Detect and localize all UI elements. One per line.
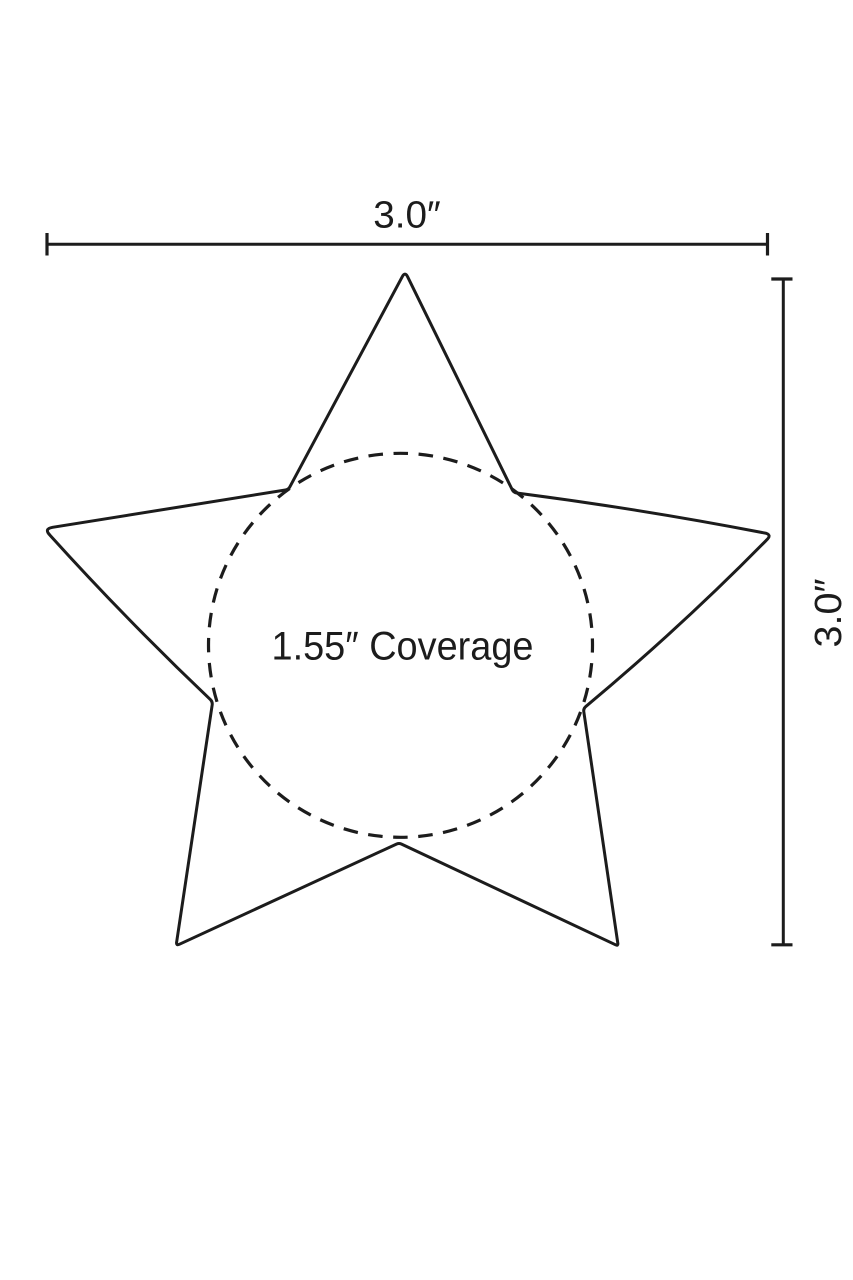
svg-text:1.55″ Coverage: 1.55″ Coverage [272, 625, 534, 669]
svg-text:3.0″: 3.0″ [373, 195, 441, 237]
svg-text:3.0″: 3.0″ [808, 579, 850, 648]
